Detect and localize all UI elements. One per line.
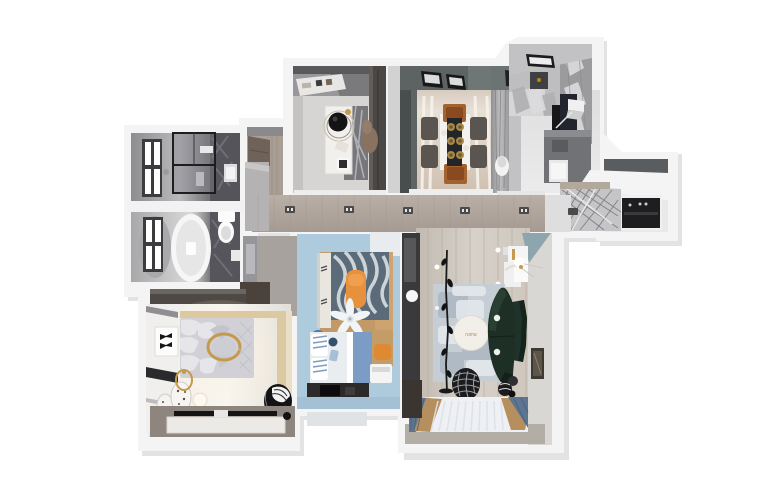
svg-text:roma: roma	[465, 332, 477, 338]
